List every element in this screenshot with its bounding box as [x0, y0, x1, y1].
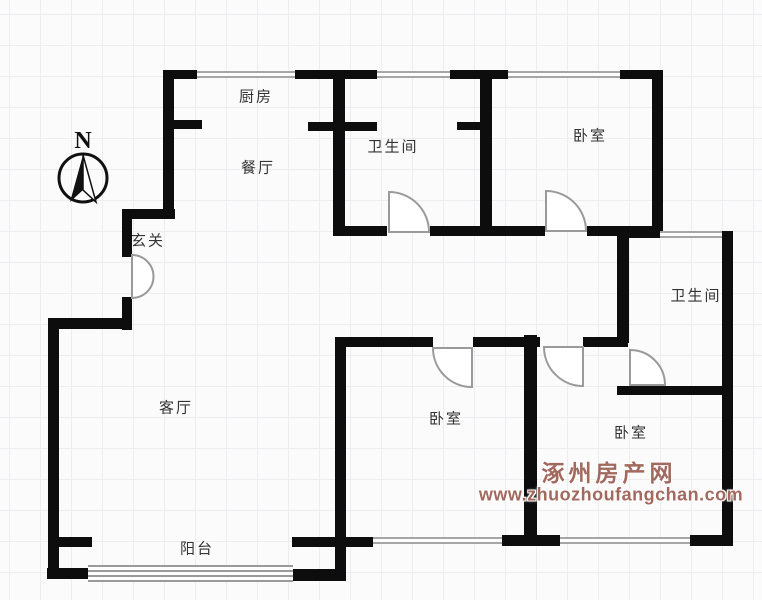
- wall-segment: [165, 120, 202, 129]
- wall-segment: [333, 70, 345, 236]
- wall-segment: [502, 535, 560, 546]
- bathroom-top-door: [389, 192, 429, 232]
- bedroom-middle-door: [433, 348, 472, 387]
- compass-north-icon: N: [51, 122, 115, 214]
- bedroom-top-right-door: [546, 191, 586, 231]
- wall-segment: [163, 70, 174, 218]
- window: [88, 565, 293, 582]
- window: [560, 537, 690, 544]
- room-label-bathroom-right: 卫生间: [670, 289, 721, 304]
- watermark-site-name: 涿州房产网: [542, 454, 677, 488]
- doors-layer: [0, 0, 762, 600]
- wall-segment: [47, 568, 92, 579]
- watermark-site-url: www.zhuozhoufangchan.com: [479, 485, 743, 506]
- window: [197, 71, 295, 78]
- wall-segment: [690, 535, 733, 546]
- entrance-door: [132, 255, 154, 298]
- room-label-kitchen: 厨房: [239, 90, 273, 105]
- room-label-bedroom-bottom-right: 卧室: [614, 426, 648, 441]
- wall-segment: [457, 122, 481, 130]
- wall-segment: [652, 70, 663, 230]
- wall-segment: [617, 386, 727, 395]
- wall-segment: [48, 318, 59, 578]
- wall-segment: [524, 335, 537, 536]
- window: [660, 231, 722, 238]
- window: [377, 71, 450, 78]
- window: [373, 537, 502, 544]
- wall-segment: [333, 226, 387, 236]
- room-label-bedroom-top-right: 卧室: [573, 129, 607, 144]
- room-label-bedroom-middle: 卧室: [429, 412, 463, 427]
- wall-segment: [583, 337, 628, 347]
- floor-plan: N 厨房餐厅玄关卫生间卧室卫生间客厅卧室卧室阳台 涿州房产网 www.zhuoz…: [0, 0, 762, 600]
- wall-segment: [480, 78, 492, 230]
- compass-n-label: N: [74, 128, 92, 154]
- wall-segment: [335, 337, 433, 347]
- wall-segment: [617, 231, 629, 343]
- room-label-living-room: 客厅: [159, 401, 193, 416]
- wall-segment: [48, 318, 127, 329]
- window: [508, 71, 620, 78]
- wall-segment: [292, 537, 373, 547]
- room-label-balcony: 阳台: [180, 542, 214, 557]
- wall-segment: [430, 226, 545, 236]
- wall-segment: [59, 537, 92, 547]
- room-label-bathroom-top: 卫生间: [367, 140, 418, 155]
- room-label-dining-room: 餐厅: [241, 161, 275, 176]
- room-label-entry-foyer: 玄关: [131, 234, 165, 249]
- bedroom-bottom-right-door: [544, 347, 583, 386]
- bathroom-right-door: [630, 350, 665, 385]
- wall-segment: [450, 70, 508, 79]
